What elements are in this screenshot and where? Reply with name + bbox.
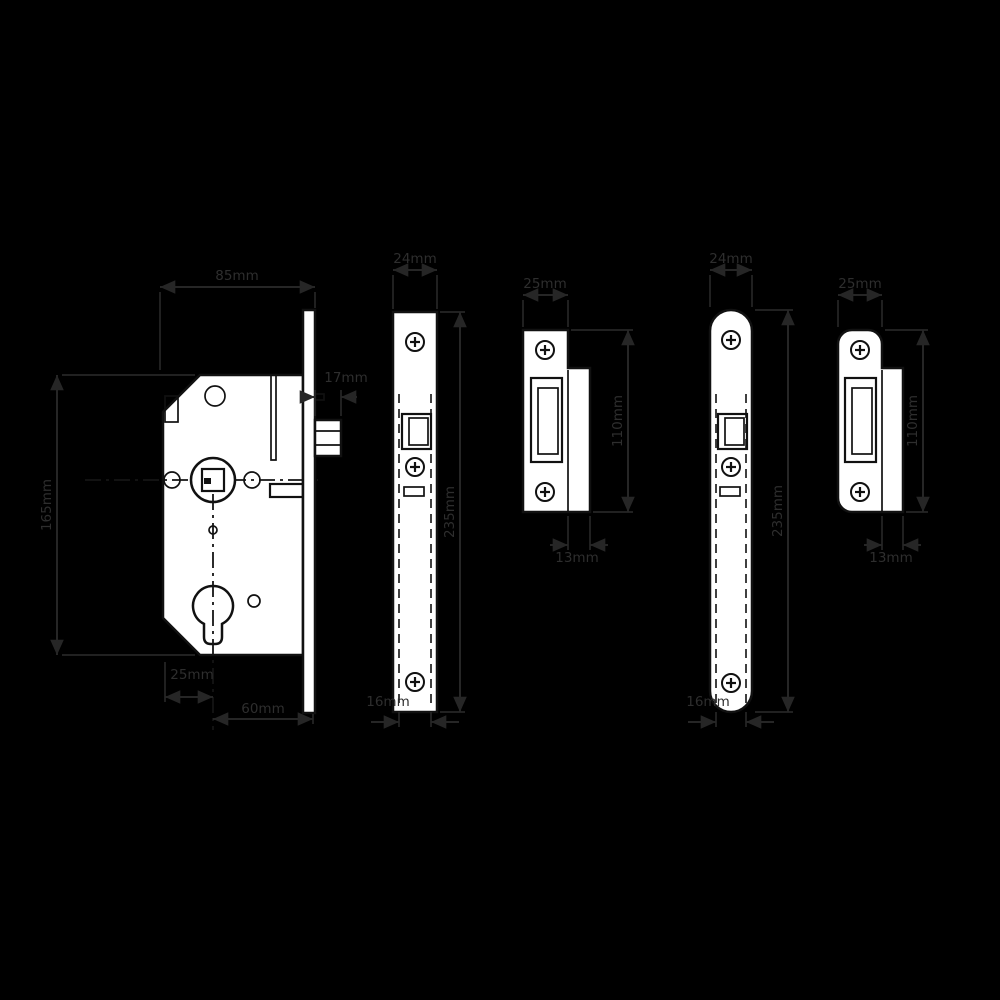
screw-icon	[722, 674, 740, 692]
dim-label-strike-width: 25mm	[838, 276, 881, 292]
dim-label-forend-height: 235mm	[770, 485, 786, 537]
dim-label-strike-width: 25mm	[523, 276, 566, 292]
spindle-grub	[204, 478, 211, 484]
screw-icon	[536, 483, 554, 501]
dim-label-rear-to-centre: 25mm	[170, 667, 213, 683]
dim-label-case-thickness: 16mm	[686, 694, 729, 710]
screw-icon	[406, 673, 424, 691]
screw-icon	[851, 341, 869, 359]
dim-label-forend-width: 24mm	[709, 251, 752, 267]
dim-label-case-height: 165mm	[39, 479, 55, 531]
cylinder-screw-icon	[722, 458, 740, 476]
diagram-canvas: 85mm 165mm 17mm 25mm 60mm	[0, 0, 1000, 1000]
dim-label-case-depth: 85mm	[215, 268, 258, 284]
dim-label-strike-height: 110mm	[905, 395, 921, 447]
dim-label-strike-lip: 13mm	[555, 550, 598, 566]
latch-bolt	[315, 420, 341, 456]
screw-icon	[851, 483, 869, 501]
dim-label-strike-height: 110mm	[610, 395, 626, 447]
dim-label-backset: 60mm	[241, 701, 284, 717]
screw-icon	[406, 333, 424, 351]
dim-rear-to-centre: 25mm	[165, 662, 214, 702]
dim-label-forend-height: 235mm	[442, 486, 458, 538]
dim-label-case-thickness: 16mm	[366, 694, 409, 710]
faceplate	[303, 310, 315, 713]
cylinder-screw-icon	[406, 458, 424, 476]
dim-label-forend-width: 24mm	[393, 251, 436, 267]
dim-label-latch-projection: 17mm	[324, 370, 367, 386]
lock-technical-drawing: 85mm 165mm 17mm 25mm 60mm	[0, 0, 1000, 1000]
dim-label-strike-lip: 13mm	[869, 550, 912, 566]
screw-icon	[722, 331, 740, 349]
screw-icon	[536, 341, 554, 359]
